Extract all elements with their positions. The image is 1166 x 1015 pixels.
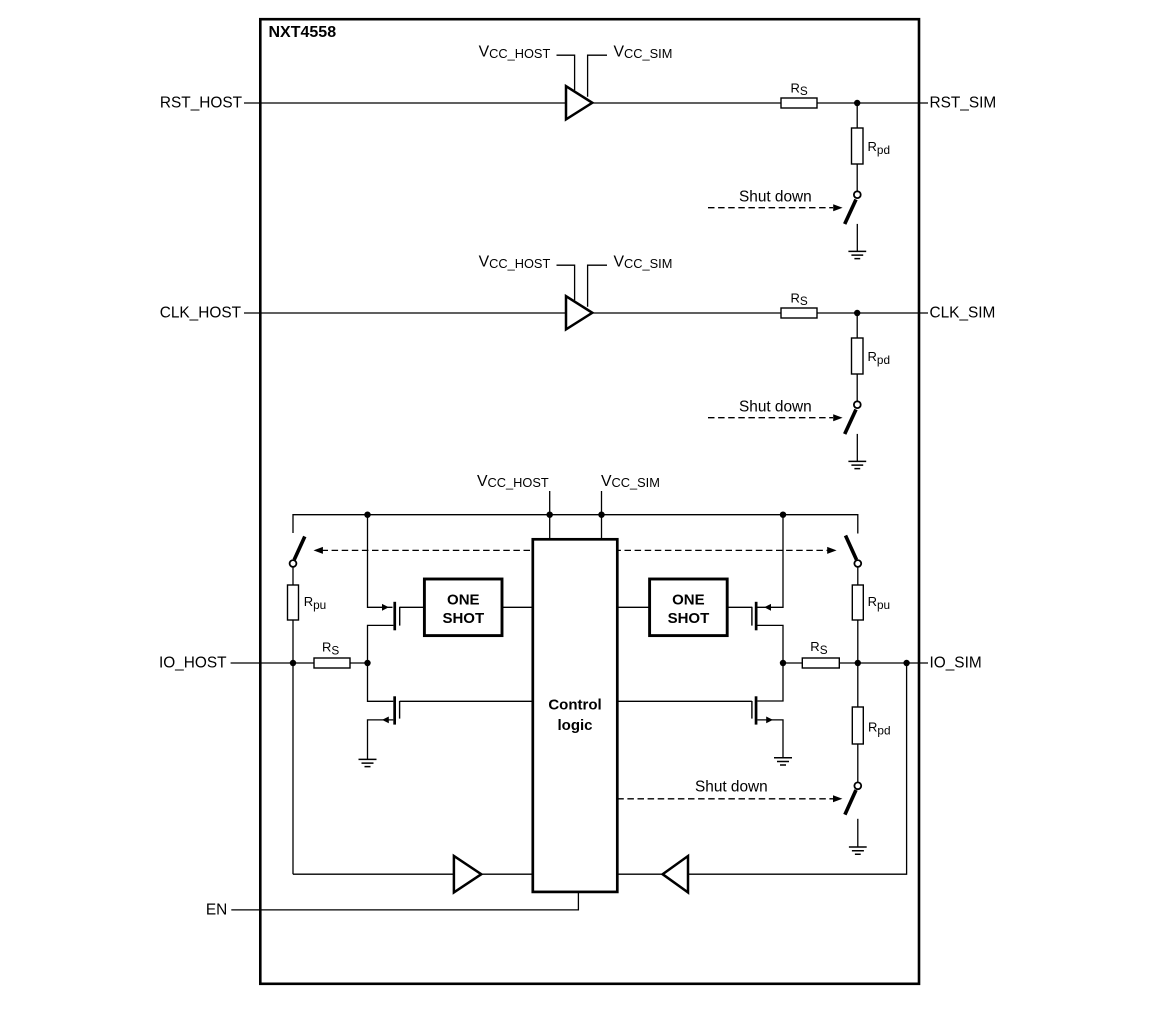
svg-text:VCC_SIM: VCC_SIM (601, 473, 660, 490)
svg-text:IO_HOST: IO_HOST (159, 655, 227, 672)
svg-text:ONE: ONE (447, 591, 480, 608)
svg-text:SHOT: SHOT (442, 610, 484, 627)
svg-text:Shut down: Shut down (739, 398, 812, 415)
svg-text:RST_SIM: RST_SIM (930, 95, 997, 112)
svg-text:Shut down: Shut down (739, 188, 812, 205)
svg-text:CLK_SIM: CLK_SIM (930, 305, 996, 322)
svg-text:VCC_SIM: VCC_SIM (614, 254, 673, 271)
svg-text:VCC_HOST: VCC_HOST (479, 44, 551, 61)
svg-text:CLK_HOST: CLK_HOST (160, 305, 242, 322)
svg-text:VCC_HOST: VCC_HOST (477, 473, 549, 490)
svg-text:IO_SIM: IO_SIM (930, 655, 982, 672)
svg-text:NXT4558: NXT4558 (269, 24, 337, 41)
svg-text:VCC_HOST: VCC_HOST (479, 254, 551, 271)
svg-text:VCC_SIM: VCC_SIM (614, 44, 673, 61)
svg-text:EN: EN (206, 902, 227, 919)
svg-text:Shut down: Shut down (695, 778, 768, 795)
svg-text:SHOT: SHOT (668, 610, 710, 627)
svg-text:logic: logic (557, 717, 592, 734)
svg-text:ONE: ONE (672, 591, 705, 608)
svg-text:Control: Control (548, 696, 601, 713)
svg-text:RST_HOST: RST_HOST (160, 95, 243, 112)
